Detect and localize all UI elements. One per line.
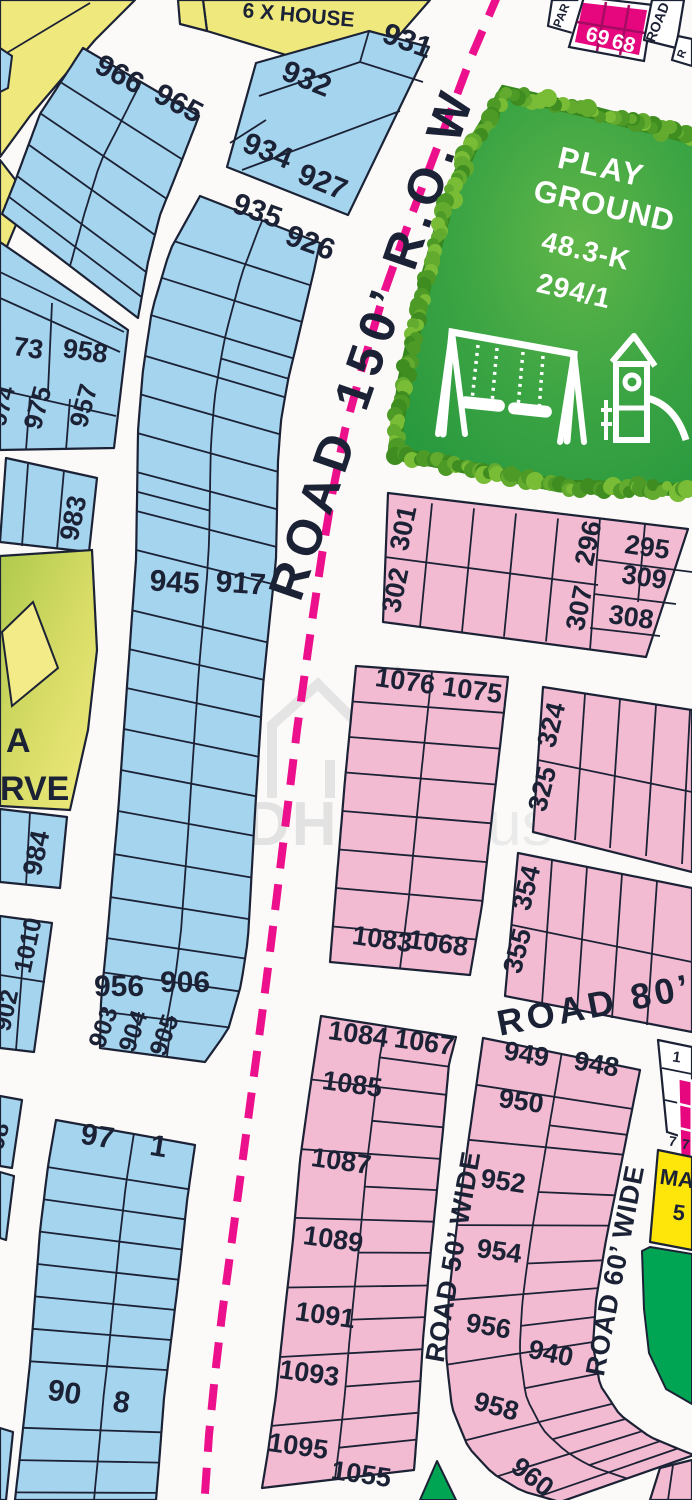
svg-text:956: 956 [94,970,144,1003]
svg-text:952: 952 [479,1163,528,1199]
svg-text:97: 97 [78,1118,116,1156]
svg-text:73: 73 [11,331,45,365]
svg-text:945: 945 [149,564,201,600]
svg-text:90: 90 [45,1374,83,1412]
svg-text:309: 309 [620,559,669,595]
svg-text:308: 308 [607,599,656,635]
svg-text:MA: MA [658,1164,692,1194]
svg-text:906: 906 [160,966,210,999]
svg-text:RVE: RVE [0,770,69,808]
svg-text:950: 950 [497,1083,546,1119]
svg-text:954: 954 [475,1233,524,1269]
svg-text:A: A [6,722,31,760]
svg-text:958: 958 [61,333,110,369]
